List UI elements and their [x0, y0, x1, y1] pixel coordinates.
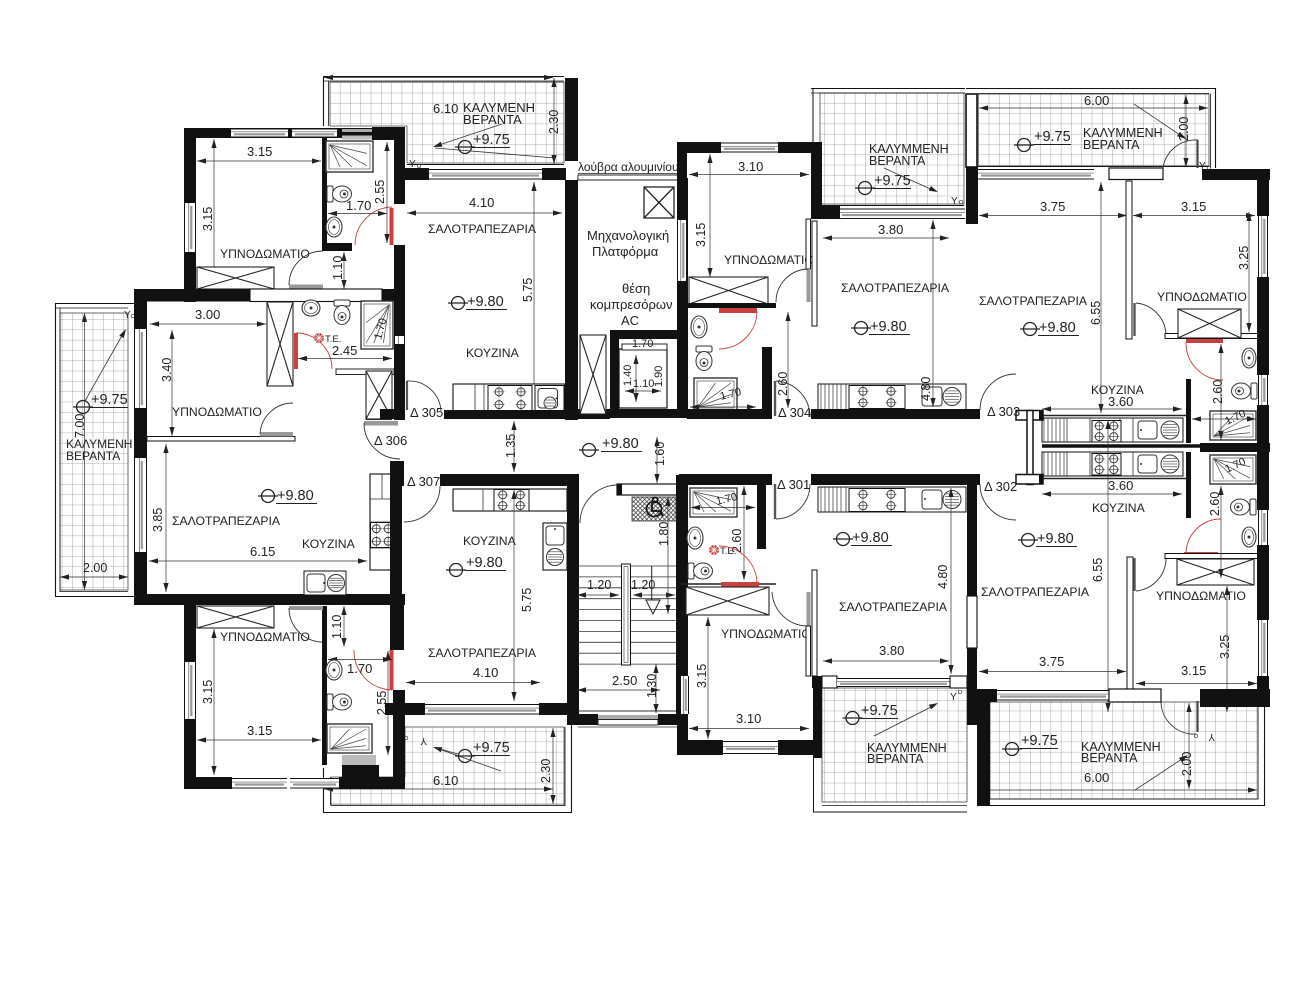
- svg-text:Δ 303: Δ 303: [987, 404, 1020, 419]
- svg-text:ΥΠΝΟΔΩΜΑΤΙΟ: ΥΠΝΟΔΩΜΑΤΙΟ: [724, 253, 814, 267]
- svg-text:ΥΠΝΟΔΩΜΑΤΙΟ: ΥΠΝΟΔΩΜΑΤΙΟ: [721, 627, 811, 641]
- svg-text:Δ 301: Δ 301: [777, 477, 810, 492]
- svg-text:1.35: 1.35: [504, 434, 518, 458]
- svg-text:2.50: 2.50: [612, 673, 637, 688]
- svg-text:1.70: 1.70: [346, 198, 371, 213]
- svg-text:ΚΟΥΖΙΝΑ: ΚΟΥΖΙΝΑ: [466, 346, 520, 360]
- svg-text:ΣΑΛΟΤΡΑΠΕΖΑΡΙΑ: ΣΑΛΟΤΡΑΠΕΖΑΡΙΑ: [979, 294, 1088, 308]
- svg-text:+9.75: +9.75: [1034, 129, 1071, 145]
- svg-text:3.15: 3.15: [247, 723, 272, 738]
- svg-text:2.00: 2.00: [1180, 752, 1194, 776]
- svg-text:1.20: 1.20: [587, 578, 611, 592]
- svg-text:1.70: 1.70: [632, 338, 653, 350]
- svg-text:Δ 307: Δ 307: [407, 474, 440, 489]
- svg-text:+9.80: +9.80: [1037, 531, 1074, 547]
- svg-text:Y: Y: [951, 196, 958, 207]
- svg-text:1.70: 1.70: [347, 661, 372, 676]
- svg-text:3.25: 3.25: [1218, 635, 1232, 659]
- svg-text:ΒΕΡΑΝΤΑ: ΒΕΡΑΝΤΑ: [66, 449, 120, 463]
- svg-text:3.15: 3.15: [1181, 663, 1206, 678]
- svg-text:5.75: 5.75: [520, 588, 534, 612]
- svg-text:+9.80: +9.80: [466, 555, 503, 571]
- svg-text:+9.80: +9.80: [467, 294, 504, 310]
- svg-text:3.15: 3.15: [695, 664, 709, 688]
- svg-text:5.75: 5.75: [521, 278, 535, 302]
- svg-text:ΚΟΥΖΙΝΑ: ΚΟΥΖΙΝΑ: [302, 537, 356, 551]
- svg-text:1.10: 1.10: [330, 615, 344, 639]
- svg-text:4.10: 4.10: [473, 665, 498, 680]
- svg-text:Δ 306: Δ 306: [374, 433, 407, 448]
- svg-text:4.10: 4.10: [469, 195, 494, 210]
- svg-text:ΣΑΛΟΤΡΑΠΕΖΑΡΙΑ: ΣΑΛΟΤΡΑΠΕΖΑΡΙΑ: [428, 222, 537, 236]
- svg-text:3.00: 3.00: [195, 307, 220, 322]
- svg-text:ΚΟΥΖΙΝΑ: ΚΟΥΖΙΝΑ: [1092, 501, 1146, 515]
- svg-text:Y: Y: [1208, 731, 1215, 742]
- svg-text:Μηχανολογική: Μηχανολογική: [587, 228, 669, 243]
- svg-text:κομπρεσόρων: κομπρεσόρων: [590, 297, 673, 312]
- svg-text:ΣΑΛΟΤΡΑΠΕΖΑΡΙΑ: ΣΑΛΟΤΡΑΠΕΖΑΡΙΑ: [172, 514, 281, 528]
- svg-text:ΒΕΡΑΝΤΑ: ΒΕΡΑΝΤΑ: [869, 154, 926, 168]
- svg-text:3.80: 3.80: [879, 643, 904, 658]
- svg-text:ΒΕΡΑΝΤΑ: ΒΕΡΑΝΤΑ: [1081, 751, 1138, 765]
- svg-text:3.15: 3.15: [694, 223, 708, 247]
- svg-text:7.00: 7.00: [73, 414, 87, 438]
- svg-text:2.60: 2.60: [1211, 380, 1225, 404]
- svg-text:ΥΠΝΟΔΩΜΑΤΙΟ: ΥΠΝΟΔΩΜΑΤΙΟ: [172, 405, 262, 419]
- svg-text:+9.75: +9.75: [91, 392, 128, 408]
- svg-text:ΒΕΡΑΝΤΑ: ΒΕΡΑΝΤΑ: [1083, 138, 1140, 152]
- svg-text:+9.80: +9.80: [1039, 320, 1076, 336]
- svg-text:+9.75: +9.75: [874, 173, 911, 189]
- svg-text:+9.75: +9.75: [473, 132, 510, 148]
- svg-text:+9.80: +9.80: [602, 436, 639, 452]
- svg-text:3.75: 3.75: [1040, 199, 1065, 214]
- svg-text:+9.80: +9.80: [277, 488, 314, 504]
- svg-text:4.80: 4.80: [936, 565, 950, 589]
- svg-text:ΥΠΝΟΔΩΜΑΤΙΟ: ΥΠΝΟΔΩΜΑΤΙΟ: [1157, 290, 1247, 304]
- svg-text:+9.80: +9.80: [852, 530, 889, 546]
- svg-text:4.80: 4.80: [919, 377, 933, 401]
- svg-text:ΣΑΛΟΤΡΑΠΕΖΑΡΙΑ: ΣΑΛΟΤΡΑΠΕΖΑΡΙΑ: [428, 646, 537, 660]
- svg-text:ΥΠΝΟΔΩΜΑΤΙΟ: ΥΠΝΟΔΩΜΑΤΙΟ: [1156, 589, 1246, 603]
- svg-text:2.60: 2.60: [730, 529, 744, 553]
- svg-text:Y: Y: [950, 692, 957, 703]
- svg-text:6.55: 6.55: [1091, 558, 1105, 582]
- svg-text:2.30: 2.30: [539, 759, 553, 783]
- svg-text:ΥΠΝΟΔΩΜΑΤΙΟ: ΥΠΝΟΔΩΜΑΤΙΟ: [220, 247, 310, 261]
- svg-text:3.10: 3.10: [736, 711, 761, 726]
- svg-text:Y: Y: [409, 159, 416, 170]
- svg-text:2.55: 2.55: [373, 180, 387, 204]
- svg-text:1.90: 1.90: [653, 366, 665, 387]
- svg-text:3.85: 3.85: [151, 508, 165, 532]
- svg-text:+9.80: +9.80: [870, 319, 907, 335]
- svg-text:3.10: 3.10: [738, 159, 763, 174]
- svg-text:2.00: 2.00: [1177, 117, 1191, 141]
- svg-text:Δ 302: Δ 302: [984, 479, 1017, 494]
- svg-text:Δ 305: Δ 305: [410, 405, 443, 420]
- svg-text:3.60: 3.60: [1108, 394, 1133, 409]
- svg-text:2.45: 2.45: [332, 343, 357, 358]
- svg-text:3.15: 3.15: [247, 144, 272, 159]
- svg-text:1.10: 1.10: [633, 378, 654, 390]
- svg-text:3.15: 3.15: [1181, 199, 1206, 214]
- svg-text:Πλατφόρμα: Πλατφόρμα: [592, 244, 659, 259]
- svg-text:λούβρα αλουμινίου: λούβρα αλουμινίου: [578, 160, 679, 174]
- svg-text:2.00: 2.00: [83, 561, 107, 575]
- svg-text:1.80: 1.80: [657, 522, 671, 546]
- svg-text:6.10: 6.10: [433, 101, 458, 116]
- svg-text:6.00: 6.00: [1084, 770, 1109, 785]
- svg-text:AC: AC: [621, 313, 639, 328]
- svg-text:3.80: 3.80: [878, 222, 903, 237]
- svg-text:Y: Y: [420, 735, 427, 746]
- svg-text:ΣΑΛΟΤΡΑΠΕΖΑΡΙΑ: ΣΑΛΟΤΡΑΠΕΖΑΡΙΑ: [981, 585, 1090, 599]
- svg-text:Y: Y: [124, 310, 131, 321]
- svg-text:ΣΑΛΟΤΡΑΠΕΖΑΡΙΑ: ΣΑΛΟΤΡΑΠΕΖΑΡΙΑ: [841, 281, 950, 295]
- svg-text:3.15: 3.15: [201, 207, 215, 231]
- svg-text:Δ 304: Δ 304: [778, 405, 811, 420]
- svg-text:ΒΕΡΑΝΤΑ: ΒΕΡΑΝΤΑ: [463, 112, 522, 127]
- svg-text:+9.75: +9.75: [861, 703, 898, 719]
- svg-text:ΚΟΥΖΙΝΑ: ΚΟΥΖΙΝΑ: [463, 534, 517, 548]
- svg-text:6.10: 6.10: [433, 773, 458, 788]
- svg-text:+9.75: +9.75: [1021, 733, 1058, 749]
- svg-text:6.00: 6.00: [1084, 93, 1109, 108]
- svg-text:6.15: 6.15: [250, 544, 275, 559]
- svg-text:1.30: 1.30: [645, 674, 659, 698]
- svg-text:3.75: 3.75: [1039, 654, 1064, 669]
- svg-text:ΥΠΝΟΔΩΜΑΤΙΟ: ΥΠΝΟΔΩΜΑΤΙΟ: [220, 630, 310, 644]
- svg-text:3.15: 3.15: [201, 680, 215, 704]
- svg-text:+9.75: +9.75: [473, 740, 510, 756]
- svg-text:ΣΑΛΟΤΡΑΠΕΖΑΡΙΑ: ΣΑΛΟΤΡΑΠΕΖΑΡΙΑ: [839, 600, 948, 614]
- svg-text:2.60: 2.60: [1208, 492, 1222, 516]
- svg-text:1.20: 1.20: [631, 578, 655, 592]
- svg-text:3.60: 3.60: [1108, 478, 1133, 493]
- svg-text:θέση: θέση: [622, 281, 650, 296]
- svg-text:ΒΕΡΑΝΤΑ: ΒΕΡΑΝΤΑ: [867, 752, 924, 766]
